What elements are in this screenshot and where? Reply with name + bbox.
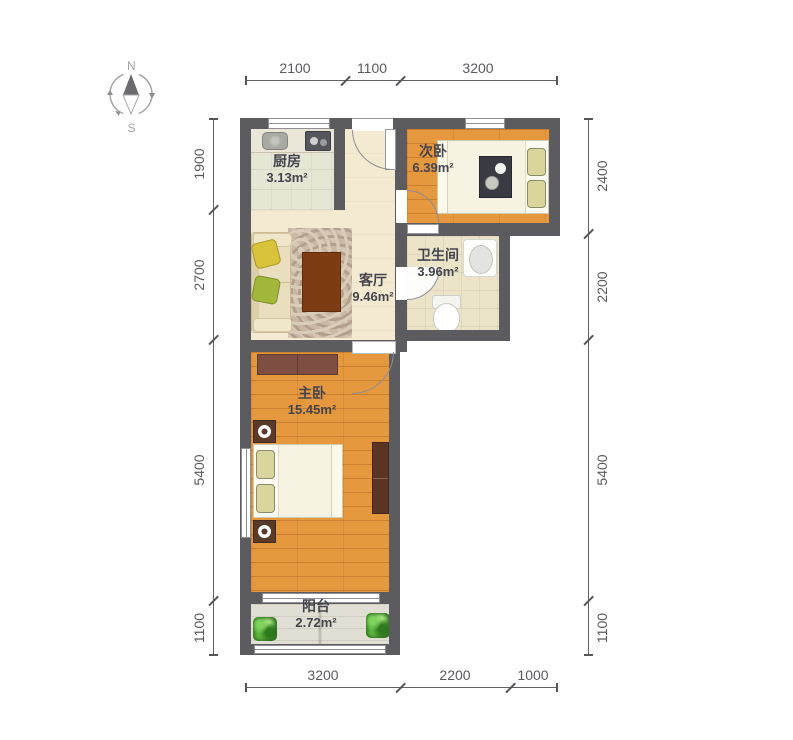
dim-end-tick (556, 76, 558, 85)
wall-hall-divider (395, 118, 407, 352)
bed-pillow (256, 484, 275, 513)
second-bedroom-door-opening (396, 190, 407, 223)
wall-bathroom-bottom (395, 330, 510, 341)
dimension-label: 1100 (191, 600, 207, 656)
dim-end-tick (209, 654, 218, 656)
dimension-label: 2200 (415, 667, 495, 683)
dimension-label: 2200 (594, 259, 610, 315)
balcony-window (254, 645, 386, 654)
dimension-label: 2400 (594, 148, 610, 204)
wall-right-upper (549, 118, 560, 236)
dimension-label: 3200 (438, 60, 518, 76)
dimension-label: 2100 (255, 60, 335, 76)
dresser (257, 354, 338, 375)
wardrobe (372, 442, 389, 514)
bathroom-sink-icon (463, 239, 497, 277)
plant-icon (253, 617, 277, 641)
dimension-label: 1100 (332, 60, 412, 76)
floor-plan: N S (0, 0, 793, 740)
dim-end-tick (245, 683, 247, 692)
wall-master-right (389, 352, 400, 604)
dim-end-tick (556, 683, 558, 692)
second-bedroom-door-leaf (407, 224, 439, 234)
dimension-label: 1900 (191, 136, 207, 192)
dim-end-tick (584, 654, 593, 656)
sofa-pillow-green (251, 275, 281, 305)
kitchen-sink-icon (262, 132, 288, 150)
bathroom-door-opening (396, 267, 407, 300)
wall-kitchen-right (334, 118, 345, 210)
bed-pillow (527, 180, 546, 208)
nightstand-lamp-icon (253, 420, 276, 443)
dimension-line-left (213, 118, 214, 655)
plant-icon (366, 613, 390, 638)
dimension-label: 1000 (493, 667, 573, 683)
dim-end-tick (584, 118, 593, 120)
dimension-label: 5400 (191, 442, 207, 498)
toilet-icon (429, 295, 462, 332)
kitchen-window (268, 118, 330, 129)
nightstand-lamp-icon (253, 520, 276, 543)
master-balcony-window (262, 593, 380, 603)
wall-bathroom-right (499, 236, 510, 341)
compass-south-label: S (128, 121, 136, 135)
master-bedroom-side-window (241, 448, 251, 538)
coffee-table (302, 252, 341, 312)
dimension-label: 3200 (283, 667, 363, 683)
second-bedroom-window (465, 118, 505, 129)
bed-pillow (527, 148, 546, 176)
compass-icon: N S (95, 52, 167, 136)
dim-end-tick (209, 118, 218, 120)
bed-tray-icon (479, 156, 512, 198)
wall-left (240, 118, 251, 655)
dimension-label: 2700 (191, 247, 207, 303)
dim-end-tick (245, 76, 247, 85)
stove-icon (305, 131, 331, 151)
dimension-line-right (588, 118, 589, 655)
bed-pillow (256, 450, 275, 479)
dimension-label: 1100 (594, 600, 610, 656)
compass-north-label: N (127, 59, 136, 73)
dimension-label: 5400 (594, 442, 610, 498)
